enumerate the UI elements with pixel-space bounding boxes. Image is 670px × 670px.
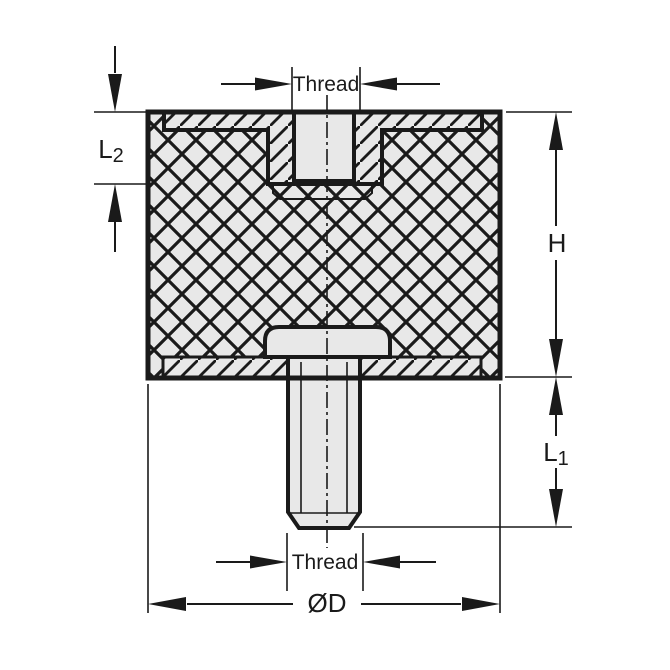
stud-outline: [288, 357, 360, 528]
arrow-left-icon: [148, 597, 186, 611]
h-label: H: [548, 228, 567, 258]
arrow-right-icon: [250, 556, 287, 569]
arrow-up-icon: [108, 184, 122, 222]
arrow-up-icon: [549, 112, 563, 150]
arrow-down-icon: [108, 74, 122, 112]
l2-label-main: L: [98, 134, 112, 164]
thread-top-label: Thread: [293, 73, 360, 96]
dim-thread-bottom: Thread: [216, 533, 436, 591]
thread-bottom-label: Thread: [292, 551, 359, 574]
dim-h: H: [505, 112, 572, 377]
mount-cross-section-drawing: Thread L2 H L1 Thread ØD: [0, 0, 670, 670]
l1-label-main: L: [543, 437, 557, 467]
arrow-up-icon: [549, 377, 563, 415]
dim-l2: L2: [94, 46, 147, 252]
l2-label: L2: [98, 134, 124, 167]
l2-label-sub: 2: [113, 145, 124, 167]
l1-label-sub: 1: [558, 448, 569, 470]
dim-l1: L1: [354, 377, 572, 527]
od-label: ØD: [308, 588, 347, 618]
arrow-down-icon: [549, 489, 563, 527]
arrow-right-icon: [462, 597, 500, 611]
technical-drawing-canvas: Thread L2 H L1 Thread ØD: [0, 0, 670, 670]
thread-hole-interior: [294, 112, 354, 182]
arrow-left-icon: [360, 78, 397, 91]
arrow-down-icon: [549, 339, 563, 377]
dim-thread-top: Thread: [221, 67, 440, 110]
threaded-stud: [288, 357, 360, 528]
l1-label: L1: [543, 437, 569, 470]
arrow-left-icon: [363, 556, 400, 569]
arrow-right-icon: [255, 78, 292, 91]
